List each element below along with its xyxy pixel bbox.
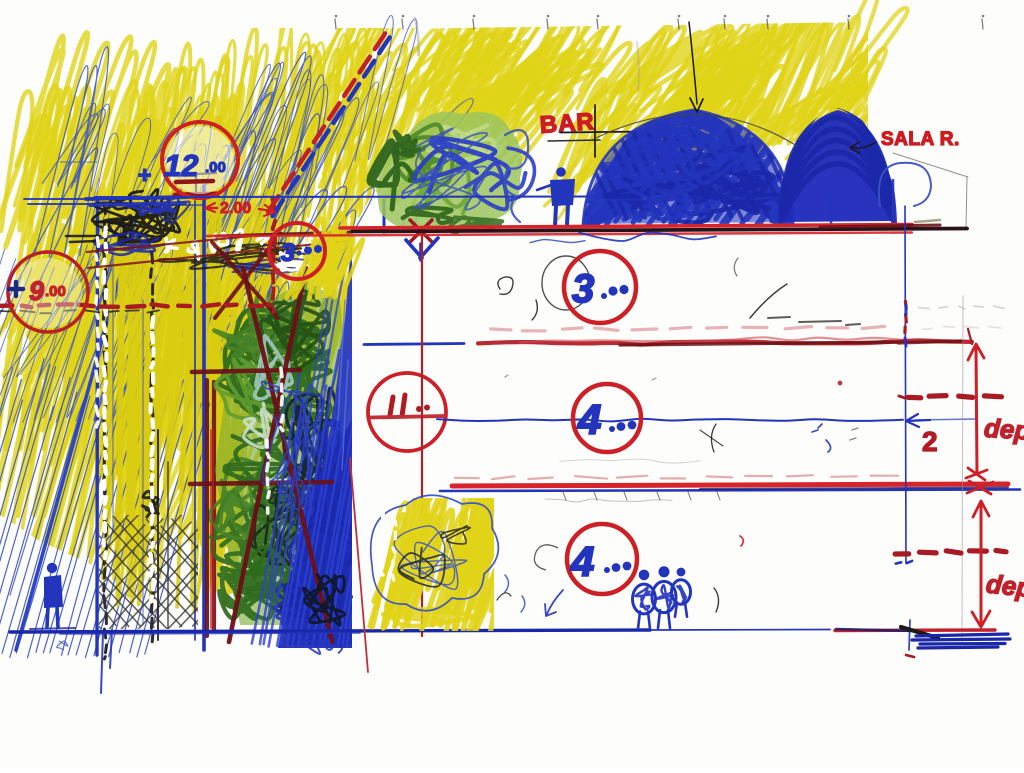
svg-text:2.00: 2.00 — [220, 200, 251, 217]
svg-text:.00: .00 — [45, 283, 66, 300]
svg-text:2: 2 — [922, 426, 938, 457]
svg-text:9: 9 — [29, 276, 44, 306]
svg-text:4: 4 — [570, 538, 594, 585]
svg-text:BAR: BAR — [539, 108, 596, 139]
svg-text:.00: .00 — [205, 159, 226, 176]
svg-text:4: 4 — [577, 396, 601, 443]
svg-text:dep: dep — [983, 413, 1024, 446]
svg-text:+: + — [138, 162, 151, 188]
svg-text:3: 3 — [281, 239, 295, 267]
svg-text:SALA R.: SALA R. — [881, 129, 960, 150]
svg-text:12: 12 — [164, 148, 198, 183]
svg-text:3: 3 — [572, 267, 594, 311]
svg-text:dep.: dep. — [985, 568, 1024, 603]
